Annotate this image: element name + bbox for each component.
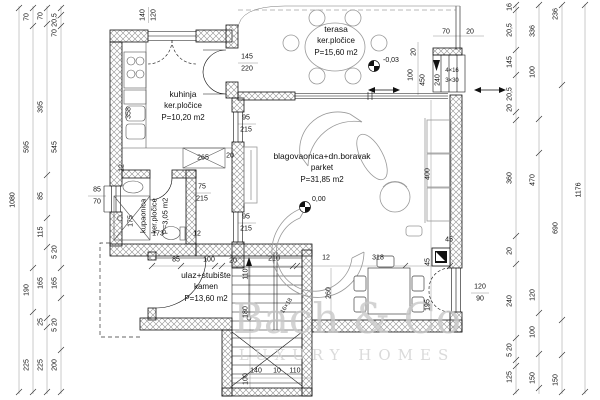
dimension-label: 100 xyxy=(530,66,537,78)
room-finish: kamen xyxy=(146,281,266,293)
dimension-label: 20 xyxy=(507,104,514,112)
dimension-label: 70 xyxy=(93,199,101,206)
dimension-label: 175 xyxy=(128,215,135,227)
dimension-label: 195 xyxy=(425,299,432,311)
dimension-label: 70 xyxy=(52,29,59,37)
room-finish: parket xyxy=(242,162,402,174)
dimension-label: 100 xyxy=(408,69,415,81)
dimension-label: 95 xyxy=(242,214,250,221)
dimension-label: 140 xyxy=(140,9,147,21)
dimension-label: 16 xyxy=(507,3,514,11)
dimension-label: 400 xyxy=(425,168,432,180)
dimension-label: 240 xyxy=(507,295,514,307)
dimension-label: 260 xyxy=(326,287,333,299)
dimension-label: 75 xyxy=(198,184,206,191)
dimension-label: 240 xyxy=(435,74,442,86)
dimension-label: 215 xyxy=(240,127,252,134)
dimension-label: 190 xyxy=(24,284,31,296)
dimension-label: 100 xyxy=(530,326,537,338)
dimension-label: 173 xyxy=(152,231,164,238)
dimension-label: 70 xyxy=(24,13,31,21)
dimension-label: 210 xyxy=(268,256,280,263)
room-area: P=10,20 m2 xyxy=(123,112,243,124)
dimension-label: 336 xyxy=(530,25,537,37)
dimension-label: 20,5 xyxy=(507,87,514,101)
room-label-living: blagovaonica+dn.boravak parket P=31,85 m… xyxy=(242,150,402,186)
dimension-label: 545 xyxy=(52,141,59,153)
room-name: terasa xyxy=(276,23,396,35)
dimension-label: 120 xyxy=(151,9,158,21)
dimension-label: 20 xyxy=(229,258,237,265)
dimension-label: 180 xyxy=(243,306,250,318)
dimension-label: 45 xyxy=(425,258,432,266)
dimension-label: 25 xyxy=(38,318,45,326)
dimension-label: 12 xyxy=(193,231,201,238)
dimension-label: 70 xyxy=(442,29,450,36)
dimension-label: 20,5 xyxy=(507,23,514,37)
dimension-label: 225 xyxy=(38,359,45,371)
dimension-label: 20 xyxy=(507,247,514,255)
dimension-label: 145 xyxy=(241,54,253,61)
dimension-label: 5 20 xyxy=(507,343,514,357)
room-label-kitchen: kuhinja ker.pločice P=10,20 m2 xyxy=(123,88,243,124)
room-area: P=13,60 m2 xyxy=(146,293,266,305)
room-name: kupaonica xyxy=(139,179,150,253)
canopy-outline xyxy=(100,243,140,337)
dimension-label: 90 xyxy=(476,296,484,303)
dimension-label: 95 xyxy=(242,115,250,122)
dimension-label: 265 xyxy=(197,155,209,162)
dimension-label: 165 xyxy=(38,277,45,289)
dimension-label: 215 xyxy=(196,196,208,203)
dimension-label: 450 xyxy=(420,74,427,86)
dimension-label: 110 xyxy=(243,268,250,279)
dimension-label: 85 xyxy=(93,187,101,194)
dimension-label: 5 20 xyxy=(52,318,59,332)
room-label-bathroom: kupaonica ker.pločice P=3,05 m2 xyxy=(139,179,172,253)
dimension-label: 12 xyxy=(119,164,126,172)
dimension-label: 10 xyxy=(273,368,281,375)
dimension-label: 20 xyxy=(226,153,234,160)
dimension-label: 115 xyxy=(38,226,45,237)
room-finish: ker.pločice xyxy=(150,179,161,253)
room-area: P=3,05 m2 xyxy=(160,179,171,253)
dimension-label: 358 xyxy=(126,107,133,119)
dimension-label: 5 20 xyxy=(52,245,59,259)
room-name: blagovaonica+dn.boravak xyxy=(242,150,402,162)
flue-symbol xyxy=(432,248,450,266)
room-finish: ker.pločice xyxy=(123,100,243,112)
dimension-label: 20 xyxy=(466,29,474,36)
dimension-label: 200 xyxy=(52,359,59,371)
room-name: kuhinja xyxy=(123,88,243,100)
room-finish: ker.pločice xyxy=(276,35,396,47)
room-label-terrace: terasa ker.pločice P=15,60 m2 xyxy=(276,23,396,59)
dimension-label: 100 xyxy=(243,373,250,385)
dimension-label: 110 xyxy=(289,368,300,375)
dimension-label: 3×30 xyxy=(445,78,459,84)
dimension-label: 4×16 xyxy=(445,68,459,74)
dimension-label: 120 xyxy=(474,284,486,291)
dimension-label: 1176 xyxy=(576,182,583,197)
dimension-label: 236 xyxy=(553,8,560,20)
dimension-label: 690 xyxy=(553,222,560,234)
dimension-label: 215 xyxy=(240,226,252,233)
dimension-label: 145 xyxy=(507,56,514,68)
dimension-label: 360 xyxy=(507,172,514,184)
room-area: P=31,85 m2 xyxy=(242,174,402,186)
dimension-label: 12 xyxy=(322,255,330,262)
dimension-label: 470 xyxy=(530,174,537,186)
level-markers xyxy=(300,61,380,213)
dimension-label: 100 xyxy=(203,257,215,264)
dimension-label: 20,5 xyxy=(52,13,59,27)
floor-plan: kuhinja ker.pločice P=10,20 m2 terasa ke… xyxy=(0,0,600,400)
dimension-label: 20 xyxy=(411,48,418,56)
dimension-label: 150 xyxy=(553,374,560,386)
dimension-label: 165 xyxy=(52,277,59,289)
dimension-label: 125 xyxy=(507,371,514,383)
level-value-terrace: -0,03 xyxy=(383,57,399,64)
dimension-label: 70 xyxy=(38,12,45,20)
dimension-label: 120 xyxy=(530,289,537,301)
dimension-label: 85 xyxy=(38,192,45,200)
dimension-label: 395 xyxy=(38,101,45,113)
room-area: P=15,60 m2 xyxy=(276,47,396,59)
dimension-label: 45 xyxy=(445,237,453,244)
living-furniture xyxy=(244,112,451,297)
dimension-label: 220 xyxy=(241,66,253,73)
dimension-label: 318 xyxy=(372,255,384,262)
dimension-label: 595 xyxy=(24,141,31,153)
dining-set xyxy=(354,256,424,314)
dimension-label: 1080 xyxy=(10,192,17,208)
level-value-living: 0,00 xyxy=(312,196,326,203)
dimension-label: 85 xyxy=(172,257,180,264)
dimension-label: 225 xyxy=(24,359,31,371)
dimension-label: 150 xyxy=(530,372,537,384)
dimension-label: 140 xyxy=(250,368,262,375)
